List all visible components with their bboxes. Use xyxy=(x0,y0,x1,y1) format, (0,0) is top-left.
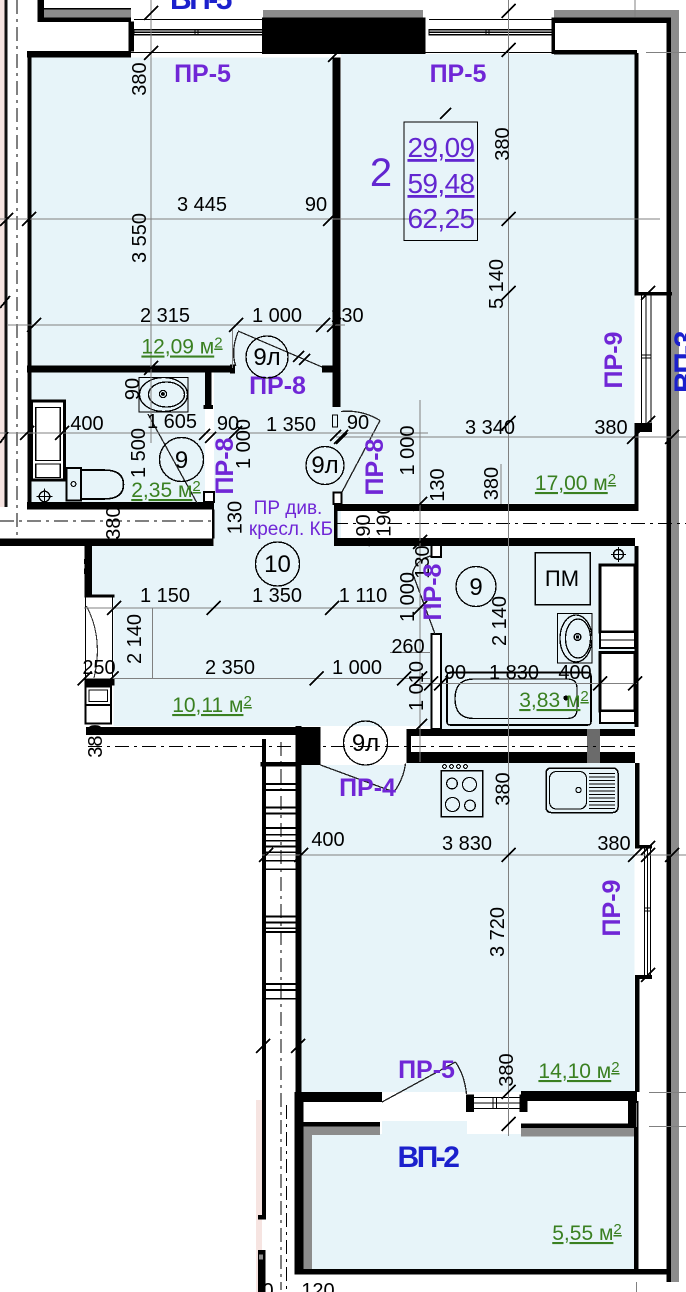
svg-text:ПР-8: ПР-8 xyxy=(361,438,389,495)
svg-text:130: 130 xyxy=(427,468,449,501)
svg-text:ПР-8: ПР-8 xyxy=(211,437,239,494)
svg-text:ПР-5: ПР-5 xyxy=(174,60,231,88)
svg-text:9л: 9л xyxy=(253,344,280,371)
svg-text:3 445: 3 445 xyxy=(177,194,227,216)
svg-text:кресл. КБ: кресл. КБ xyxy=(249,519,333,540)
svg-text:1 500: 1 500 xyxy=(128,428,150,478)
svg-text:62,25: 62,25 xyxy=(407,203,474,234)
svg-text:ПР-5: ПР-5 xyxy=(430,60,487,88)
svg-text:1 000: 1 000 xyxy=(397,572,419,622)
svg-text:ВП-2: ВП-2 xyxy=(398,1141,460,1174)
svg-text:9: 9 xyxy=(175,447,188,474)
svg-text:14,10 м2: 14,10 м2 xyxy=(538,1059,619,1083)
svg-text:29,09: 29,09 xyxy=(407,132,474,163)
svg-text:1 010: 1 010 xyxy=(406,661,428,711)
svg-text:2 140: 2 140 xyxy=(124,614,146,664)
svg-text:380: 380 xyxy=(481,467,503,500)
svg-text:90: 90 xyxy=(122,378,144,400)
svg-text:130: 130 xyxy=(225,501,247,534)
svg-text:2,35 м2: 2,35 м2 xyxy=(131,478,201,502)
svg-text:ПР-4: ПР-4 xyxy=(339,774,396,802)
svg-text:400: 400 xyxy=(311,829,344,851)
svg-text:ВП-5: ВП-5 xyxy=(170,0,232,16)
svg-text:3 720: 3 720 xyxy=(487,907,509,957)
svg-text:17,00 м2: 17,00 м2 xyxy=(535,471,616,495)
svg-text:ПМ: ПМ xyxy=(545,566,579,591)
svg-text:ПР-5: ПР-5 xyxy=(398,1056,455,1084)
svg-text:1 350: 1 350 xyxy=(266,414,316,436)
svg-text:380: 380 xyxy=(85,724,107,757)
svg-text:1 000: 1 000 xyxy=(252,305,302,327)
svg-text:380: 380 xyxy=(594,417,627,439)
svg-text:1 110: 1 110 xyxy=(339,585,388,607)
svg-text:250: 250 xyxy=(82,657,115,679)
svg-text:1 150: 1 150 xyxy=(140,585,190,607)
svg-text:380: 380 xyxy=(129,62,151,95)
svg-text:3 550: 3 550 xyxy=(129,213,151,263)
svg-text:10,11 м2: 10,11 м2 xyxy=(172,693,252,717)
svg-text:90: 90 xyxy=(305,194,327,216)
svg-text:90: 90 xyxy=(444,662,466,684)
svg-text:380: 380 xyxy=(597,833,630,855)
svg-text:1 605: 1 605 xyxy=(147,411,197,433)
svg-text:400: 400 xyxy=(70,413,103,435)
svg-text:3 830: 3 830 xyxy=(442,833,492,855)
svg-text:260: 260 xyxy=(391,636,424,658)
svg-text:1 000: 1 000 xyxy=(397,425,419,475)
svg-text:3,83 м2: 3,83 м2 xyxy=(519,688,589,712)
svg-text:380: 380 xyxy=(496,1053,518,1086)
svg-text:ПР-9: ПР-9 xyxy=(600,332,628,389)
svg-text:0: 0 xyxy=(262,1280,273,1292)
svg-text:ПР-9: ПР-9 xyxy=(598,880,626,937)
svg-text:1 830: 1 830 xyxy=(489,662,539,684)
svg-text:190: 190 xyxy=(353,514,375,547)
svg-text:400: 400 xyxy=(558,662,591,684)
svg-text:190: 190 xyxy=(374,503,396,536)
svg-text:3 340: 3 340 xyxy=(465,417,515,439)
svg-text:380: 380 xyxy=(103,506,125,539)
svg-text:5 140: 5 140 xyxy=(486,259,508,309)
svg-text:12,09 м2: 12,09 м2 xyxy=(141,335,222,359)
svg-text:120: 120 xyxy=(301,1280,334,1292)
svg-text:ПР-8: ПР-8 xyxy=(419,563,447,620)
svg-text:ВП-3: ВП-3 xyxy=(669,331,686,393)
svg-text:9: 9 xyxy=(469,574,482,601)
svg-text:380: 380 xyxy=(493,772,515,805)
svg-text:380: 380 xyxy=(492,127,514,160)
svg-text:2: 2 xyxy=(370,151,392,195)
svg-text:ПР див.: ПР див. xyxy=(254,498,323,519)
svg-text:59,48: 59,48 xyxy=(407,168,474,199)
svg-text:2 350: 2 350 xyxy=(205,657,255,679)
svg-text:130: 130 xyxy=(330,305,363,327)
svg-text:5,55 м2: 5,55 м2 xyxy=(552,1221,622,1245)
svg-text:2 315: 2 315 xyxy=(140,305,190,327)
svg-text:2 140: 2 140 xyxy=(489,596,511,646)
svg-text:9л: 9л xyxy=(352,730,379,757)
svg-text:1 000: 1 000 xyxy=(332,657,382,679)
svg-text:1 350: 1 350 xyxy=(252,585,302,607)
svg-text:90: 90 xyxy=(347,412,369,434)
svg-text:9л: 9л xyxy=(311,452,338,479)
svg-text:10: 10 xyxy=(264,551,291,578)
